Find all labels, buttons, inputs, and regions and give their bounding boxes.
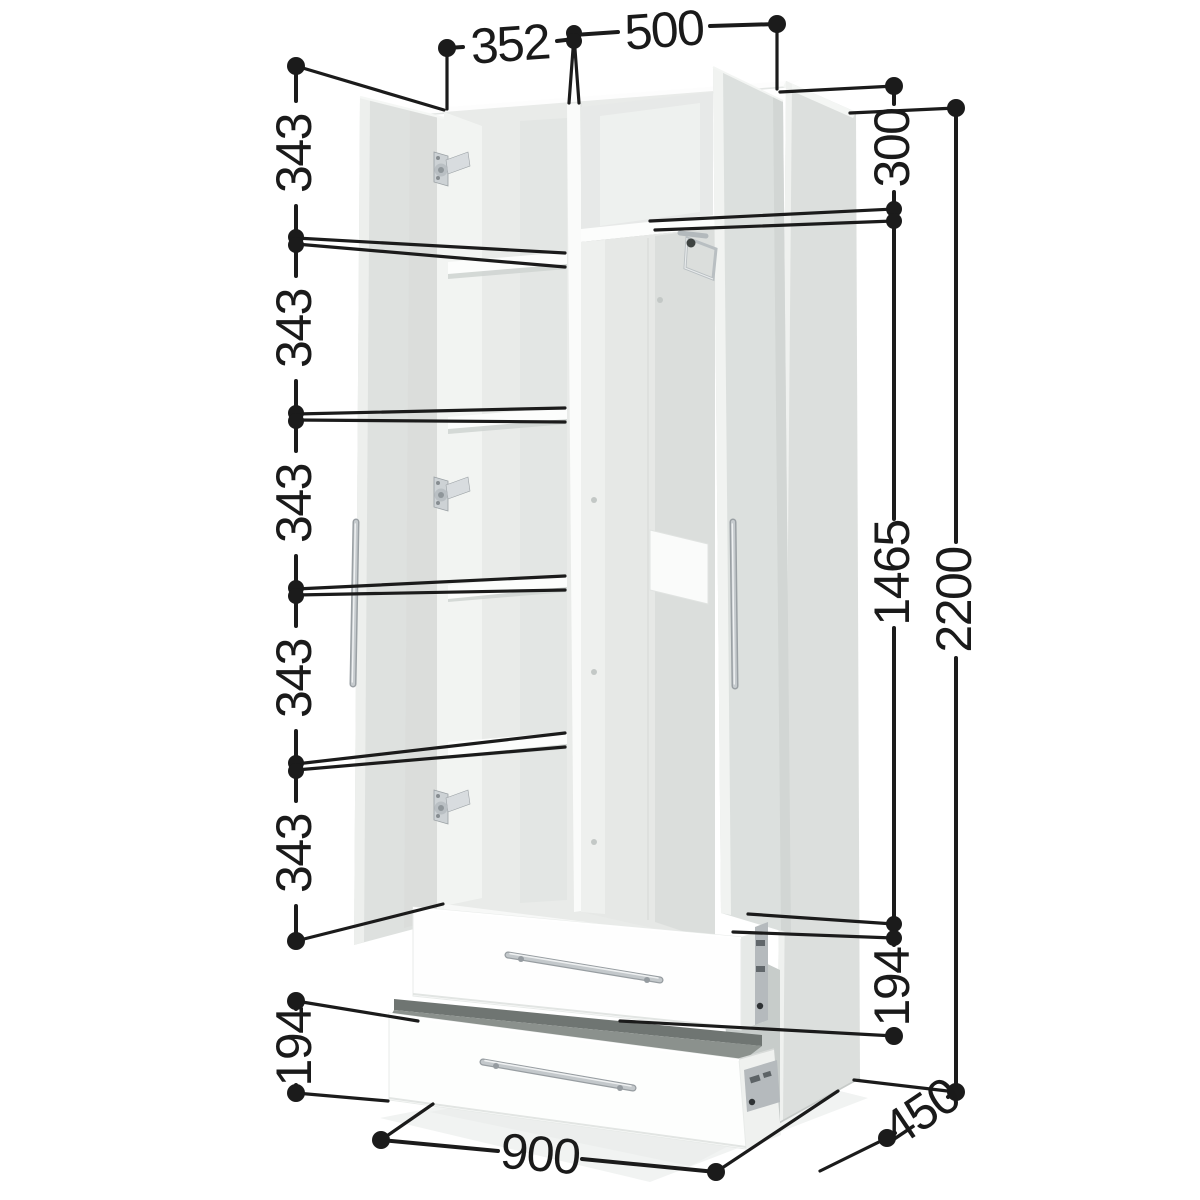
left-back-shading — [520, 118, 567, 903]
dim-shelf-343-5: 343 — [266, 814, 322, 893]
dim-top-300: 300 — [864, 109, 920, 188]
left-inner-wall — [444, 112, 482, 906]
diagram-canvas: 352 500 343 343 343 343 343 194 300 1465… — [0, 0, 1200, 1200]
dim-shelf-343-1: 343 — [266, 114, 322, 193]
dim-shelf-343-3: 343 — [266, 464, 322, 543]
rail-knob — [687, 239, 696, 248]
dim-shelf-343-4: 343 — [266, 639, 322, 718]
dim-width-352: 352 — [469, 13, 552, 74]
dim-shelf-343-2: 343 — [266, 289, 322, 368]
dim-height-2200: 2200 — [926, 547, 982, 652]
wardrobe-dimension-diagram: 352 500 343 343 343 343 343 194 300 1465… — [0, 0, 1200, 1200]
right-door-handle — [732, 522, 735, 686]
dim-drawer-194-left: 194 — [266, 1007, 322, 1087]
dim-width-500: 500 — [623, 0, 706, 61]
right-side-panel — [777, 81, 860, 1124]
dim-drawer-194-right: 194 — [864, 947, 920, 1027]
left-door-handle — [352, 522, 356, 684]
dim-mid-1465: 1465 — [864, 520, 920, 625]
dim-width-900: 900 — [498, 1123, 582, 1186]
right-door — [713, 67, 791, 934]
drawer-slide-upper — [755, 922, 768, 1025]
